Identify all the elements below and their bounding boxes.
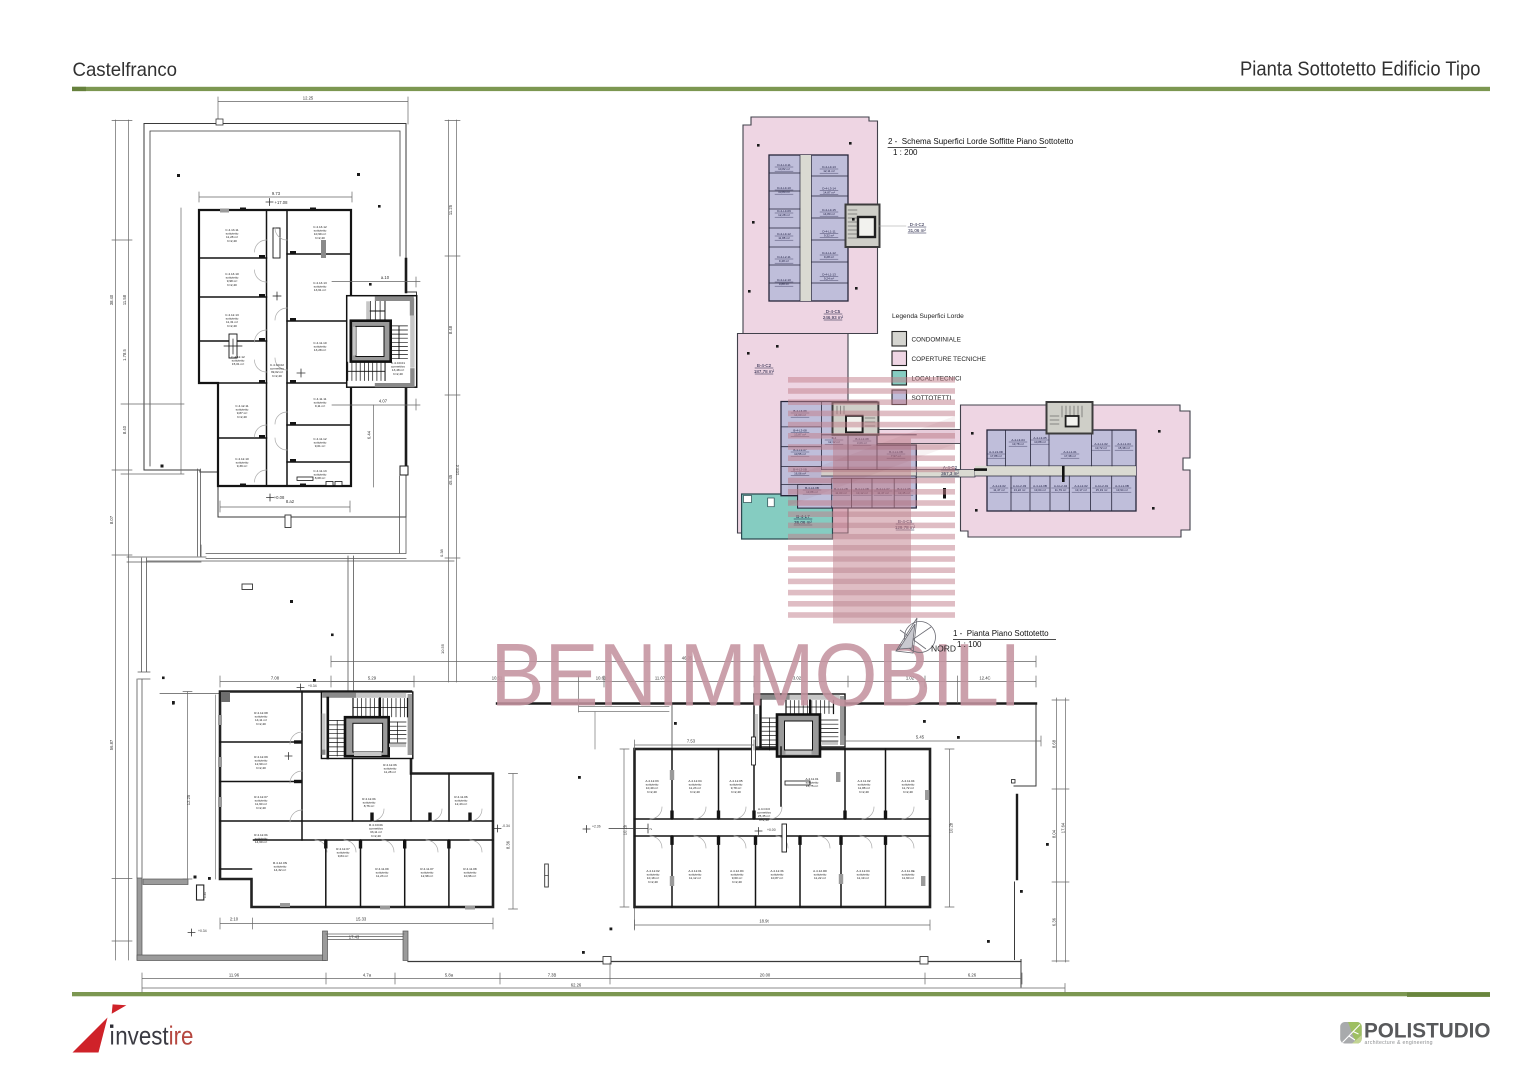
svg-text:9,48 m²: 9,48 m² bbox=[779, 259, 789, 263]
svg-text:9,84 m²: 9,84 m² bbox=[338, 854, 349, 858]
svg-text:11.96: 11.96 bbox=[229, 973, 240, 978]
svg-text:17.64: 17.64 bbox=[1061, 822, 1066, 833]
svg-text:103.4: 103.4 bbox=[455, 464, 460, 475]
svg-text:5.8a: 5.8a bbox=[445, 973, 454, 978]
svg-text:9,39 m²: 9,39 m² bbox=[237, 464, 248, 468]
svg-text:1 : 200: 1 : 200 bbox=[893, 148, 918, 157]
svg-text:9,32 m²: 9,32 m² bbox=[824, 234, 834, 238]
svg-text:15,01 m²: 15,01 m² bbox=[232, 362, 244, 366]
svg-text:12,28 m²: 12,28 m² bbox=[778, 213, 790, 217]
svg-text:17,38 m²: 17,38 m² bbox=[1064, 454, 1076, 458]
svg-text:8.40: 8.40 bbox=[122, 425, 127, 434]
svg-text:8.36: 8.36 bbox=[506, 840, 511, 849]
svg-text:a.10: a.10 bbox=[381, 275, 390, 280]
svg-text:+0.34: +0.34 bbox=[308, 684, 317, 688]
svg-text:5.29: 5.29 bbox=[368, 676, 377, 681]
svg-text:11,12 m²: 11,12 m² bbox=[689, 876, 701, 880]
svg-text:14,87 m²: 14,87 m² bbox=[823, 191, 835, 195]
svg-text:h=2,40: h=2,40 bbox=[272, 374, 282, 378]
svg-text:h=2,40: h=2,40 bbox=[237, 415, 247, 419]
svg-text:11,23 m²: 11,23 m² bbox=[376, 874, 388, 878]
svg-text:12.25: 12.25 bbox=[186, 794, 191, 805]
svg-text:14,32 m²: 14,32 m² bbox=[274, 868, 286, 872]
svg-text:14,60 m²: 14,60 m² bbox=[255, 840, 267, 844]
svg-text:8.a2: 8.a2 bbox=[286, 499, 295, 504]
svg-text:246,93 m²: 246,93 m² bbox=[823, 315, 844, 320]
svg-text:13,17 m²: 13,17 m² bbox=[1075, 488, 1087, 492]
svg-text:17.43: 17.43 bbox=[349, 935, 360, 940]
svg-text:13,28 m²: 13,28 m² bbox=[314, 348, 326, 352]
svg-text:h=2,40: h=2,40 bbox=[903, 790, 913, 794]
svg-text:9,28 m²: 9,28 m² bbox=[824, 255, 834, 259]
svg-text:18.9t: 18.9t bbox=[759, 919, 769, 924]
svg-text:187,78 m²: 187,78 m² bbox=[754, 369, 775, 374]
svg-text:D-4-C2: D-4-C2 bbox=[910, 222, 925, 227]
svg-text:11,19 m²: 11,19 m² bbox=[857, 876, 869, 880]
svg-text:45.45: 45.45 bbox=[448, 474, 453, 485]
svg-text:Pianta Sottotetto Edificio Tip: Pianta Sottotetto Edificio Tipo bbox=[1240, 58, 1481, 81]
svg-text:15,75 m²: 15,75 m² bbox=[806, 784, 818, 788]
svg-text:h=2,40: h=2,40 bbox=[315, 236, 325, 240]
svg-text:8,76 m²: 8,76 m² bbox=[364, 804, 375, 808]
svg-text:10,80 m²: 10,80 m² bbox=[778, 190, 790, 194]
svg-text:2: 2 bbox=[649, 828, 653, 830]
svg-text:12,43 m²: 12,43 m² bbox=[455, 802, 467, 806]
svg-text:6.36: 6.36 bbox=[1052, 917, 1057, 926]
svg-text:12,98 m²: 12,98 m² bbox=[421, 874, 433, 878]
svg-text:ınvestire: ınvestire bbox=[109, 1021, 194, 1051]
svg-text:12.25: 12.25 bbox=[303, 96, 314, 101]
svg-text:62.26: 62.26 bbox=[571, 983, 582, 988]
svg-text:BENIMMOBILI: BENIMMOBILI bbox=[491, 625, 1022, 725]
svg-text:9.73: 9.73 bbox=[272, 191, 281, 196]
svg-text:13,72 m²: 13,72 m² bbox=[1095, 446, 1107, 450]
svg-text:14,80 m²: 14,80 m² bbox=[823, 212, 835, 216]
svg-text:6.44: 6.44 bbox=[367, 430, 372, 439]
svg-text:h=2,40: h=2,40 bbox=[647, 790, 657, 794]
svg-text:15.33: 15.33 bbox=[356, 917, 367, 922]
svg-text:1.40: 1.40 bbox=[203, 892, 207, 898]
svg-text:15,38 m²: 15,38 m² bbox=[1118, 446, 1130, 450]
svg-text:11.58: 11.58 bbox=[122, 294, 127, 305]
svg-text:10,88 m²: 10,88 m² bbox=[1034, 440, 1046, 444]
svg-text:31,06 m²: 31,06 m² bbox=[908, 228, 926, 233]
svg-text:15,19 m²: 15,19 m² bbox=[1096, 488, 1108, 492]
svg-text:11,22 m²: 11,22 m² bbox=[814, 876, 826, 880]
svg-text:0.38: 0.38 bbox=[439, 548, 444, 557]
svg-text:20.00: 20.00 bbox=[760, 973, 771, 978]
svg-text:9,01 m²: 9,01 m² bbox=[315, 444, 326, 448]
svg-text:h=2,40: h=2,40 bbox=[256, 806, 266, 810]
svg-text:11,60 m²: 11,60 m² bbox=[902, 876, 914, 880]
svg-text:9,11 m²: 9,11 m² bbox=[315, 404, 325, 408]
svg-text:h=2,40: h=2,40 bbox=[859, 790, 869, 794]
svg-text:architecture & engineering: architecture & engineering bbox=[1365, 1040, 1433, 1046]
svg-text:56.87: 56.87 bbox=[109, 739, 114, 750]
svg-text:POLISTUDIO: POLISTUDIO bbox=[1364, 1019, 1491, 1043]
svg-text:17,88 m²: 17,88 m² bbox=[990, 454, 1002, 458]
svg-text:Legenda Superfici Lorde: Legenda Superfici Lorde bbox=[892, 313, 964, 320]
svg-text:11,47 m²: 11,47 m² bbox=[993, 488, 1005, 492]
svg-text:1 : 100: 1 : 100 bbox=[957, 640, 982, 649]
svg-text:D-4-C5: D-4-C5 bbox=[826, 309, 841, 314]
svg-text:10.55: 10.55 bbox=[440, 643, 445, 654]
svg-text:NORD: NORD bbox=[931, 644, 956, 654]
svg-text:h=2,40: h=2,40 bbox=[690, 790, 700, 794]
svg-text:11,28 m²: 11,28 m² bbox=[384, 770, 396, 774]
svg-text:9,24 m²: 9,24 m² bbox=[824, 277, 834, 281]
svg-text:13,22 m²: 13,22 m² bbox=[1014, 488, 1026, 492]
svg-text:1.78.5: 1.78.5 bbox=[122, 349, 127, 361]
svg-text:11,79 m²: 11,79 m² bbox=[1055, 488, 1067, 492]
svg-text:h=2,40: h=2,40 bbox=[732, 880, 742, 884]
svg-text:8.48: 8.48 bbox=[448, 325, 453, 334]
svg-text:7.3B: 7.3B bbox=[548, 973, 557, 978]
svg-text:+0.00: +0.00 bbox=[767, 828, 776, 832]
svg-text:h=2,40: h=2,40 bbox=[759, 818, 769, 822]
svg-text:5.45: 5.45 bbox=[916, 735, 925, 740]
svg-text:10.2b: 10.2b bbox=[949, 822, 954, 833]
svg-text:2 - Schema Superfici Lorde So: 2 - Schema Superfici Lorde Soffitte Pian… bbox=[888, 137, 1074, 146]
svg-text:h=2,40: h=2,40 bbox=[227, 324, 237, 328]
svg-text:h=2,40: h=2,40 bbox=[731, 790, 741, 794]
svg-text:11.25: 11.25 bbox=[448, 204, 453, 215]
svg-text:13,04 m²: 13,04 m² bbox=[1034, 488, 1046, 492]
svg-text:CONDOMINIALE: CONDOMINIALE bbox=[912, 337, 961, 344]
svg-text:h=2,40: h=2,40 bbox=[256, 722, 266, 726]
svg-text:10,87 m²: 10,87 m² bbox=[771, 876, 783, 880]
svg-text:+2.3b: +2.3b bbox=[592, 825, 601, 829]
svg-text:6.26: 6.26 bbox=[968, 973, 977, 978]
svg-text:+17.08: +17.08 bbox=[275, 200, 289, 205]
svg-text:h=2,40: h=2,40 bbox=[371, 834, 381, 838]
svg-text:B-4-C2: B-4-C2 bbox=[757, 363, 772, 368]
svg-text:8,08 m²: 8,08 m² bbox=[315, 476, 326, 480]
svg-text:-0.34: -0.34 bbox=[502, 824, 510, 828]
svg-text:7.08: 7.08 bbox=[271, 676, 280, 681]
svg-text:COPERTURE TECNICHE: COPERTURE TECNICHE bbox=[912, 356, 986, 363]
svg-text:8.68: 8.68 bbox=[1052, 739, 1057, 748]
svg-text:+0.34: +0.34 bbox=[198, 929, 207, 933]
svg-text:8.04: 8.04 bbox=[1052, 829, 1057, 838]
svg-text:10,96 m²: 10,96 m² bbox=[464, 874, 476, 878]
svg-text:4.7a: 4.7a bbox=[363, 973, 372, 978]
svg-text:h=2,40: h=2,40 bbox=[256, 766, 266, 770]
svg-text:38.40: 38.40 bbox=[109, 294, 114, 305]
svg-text:9,88 m²: 9,88 m² bbox=[779, 282, 789, 286]
svg-text:10,82 m²: 10,82 m² bbox=[778, 167, 790, 171]
svg-text:h=2,40: h=2,40 bbox=[227, 239, 237, 243]
svg-text:2:10: 2:10 bbox=[230, 917, 239, 922]
svg-text:4.07: 4.07 bbox=[379, 399, 388, 404]
svg-text:13,94 m²: 13,94 m² bbox=[1116, 488, 1128, 492]
svg-text:1 - Pianta Piano Sottotetto: 1 - Pianta Piano Sottotetto bbox=[953, 629, 1049, 638]
svg-text:h=2,40: h=2,40 bbox=[648, 880, 658, 884]
svg-text:7.53: 7.53 bbox=[687, 739, 696, 744]
svg-text:13,78 m²: 13,78 m² bbox=[1012, 442, 1024, 446]
svg-text:Castelfranco: Castelfranco bbox=[73, 59, 178, 81]
svg-text:+0.08: +0.08 bbox=[274, 495, 285, 500]
svg-text:8.07: 8.07 bbox=[109, 515, 114, 524]
svg-text:h=2,40: h=2,40 bbox=[227, 283, 237, 287]
svg-text:h=2,40: h=2,40 bbox=[393, 372, 403, 376]
svg-text:13,61 m²: 13,61 m² bbox=[314, 288, 326, 292]
svg-text:12,11 m²: 12,11 m² bbox=[823, 169, 835, 173]
svg-text:11,88 m²: 11,88 m² bbox=[778, 236, 790, 240]
svg-text:10.2b: 10.2b bbox=[623, 824, 628, 835]
